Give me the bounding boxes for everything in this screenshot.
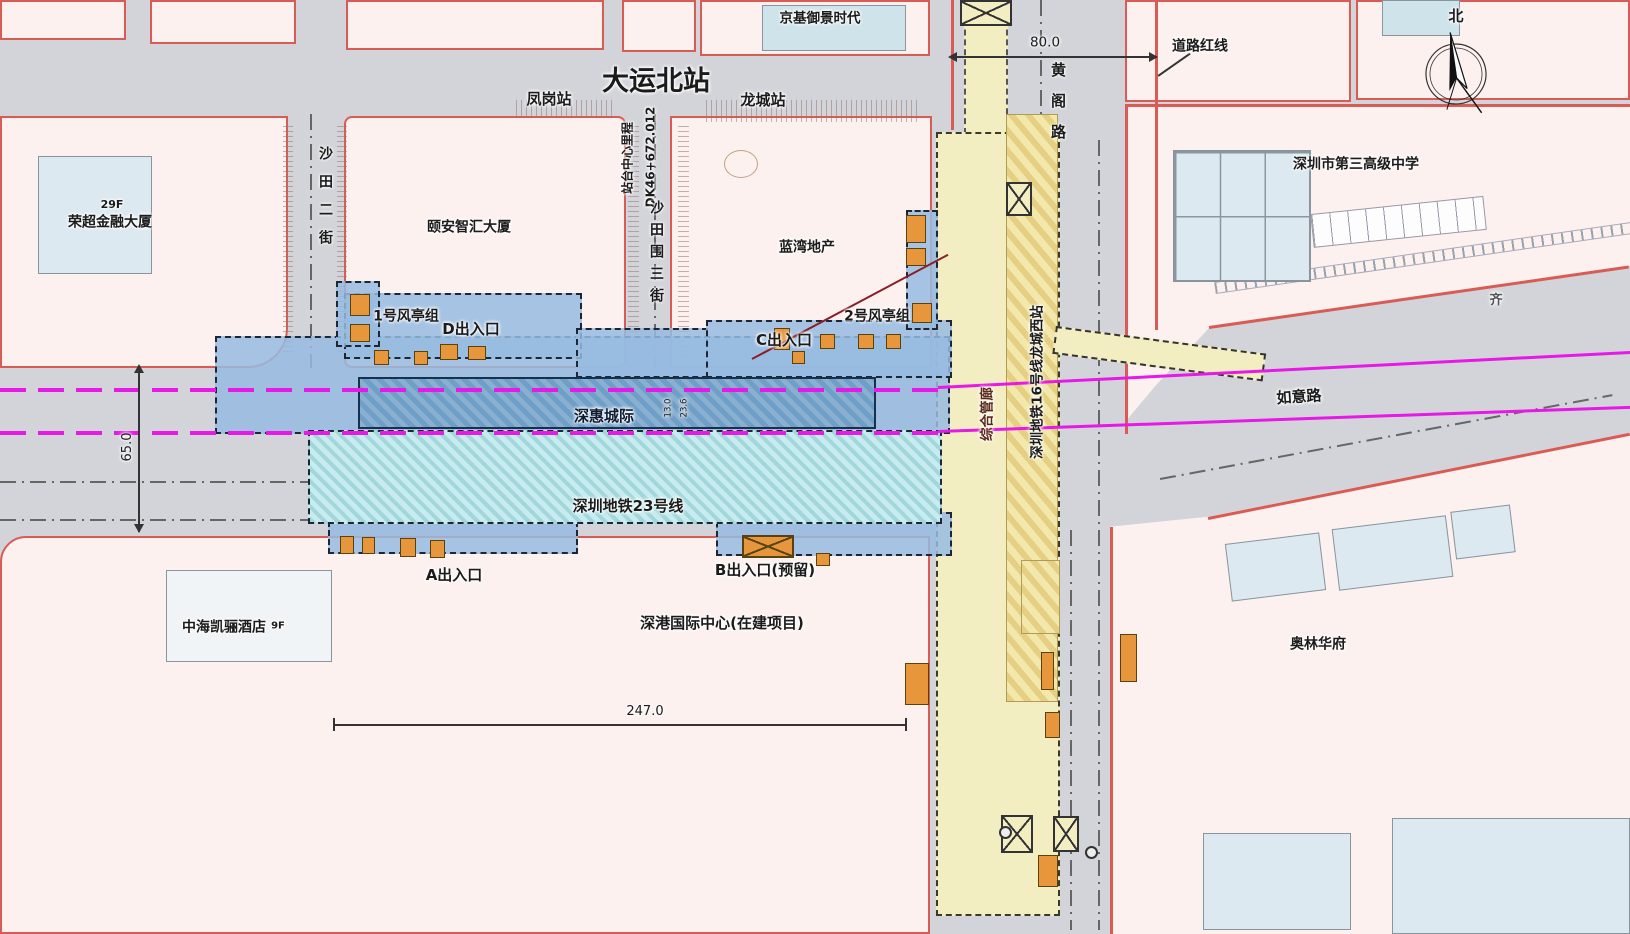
compass-north-label: 北 bbox=[1448, 8, 1463, 25]
label-exit-c: C出入口 bbox=[756, 332, 812, 349]
vent-box bbox=[362, 537, 375, 554]
vent-box bbox=[1041, 652, 1054, 690]
road-red-line bbox=[1110, 527, 1113, 934]
label-intercity: 深惠城际 bbox=[574, 408, 634, 425]
label-line23: 深圳地铁23号线 bbox=[573, 498, 684, 515]
lane-line bbox=[310, 114, 312, 368]
building-school bbox=[1173, 150, 1311, 282]
label-hotel: 中海凯骊酒店 bbox=[182, 620, 266, 635]
alignment-line-dashed bbox=[0, 431, 942, 435]
dimension-line-65 bbox=[138, 370, 140, 532]
vent-box bbox=[912, 303, 932, 323]
lane-line bbox=[0, 519, 334, 521]
vent-box bbox=[374, 350, 389, 365]
exit-b-structure bbox=[742, 535, 794, 558]
parcel bbox=[346, 0, 604, 50]
vent-box bbox=[820, 334, 835, 349]
vent-box bbox=[430, 540, 445, 558]
signal-icon bbox=[1085, 846, 1098, 859]
road-red-line bbox=[1125, 104, 1630, 107]
vent-box bbox=[468, 346, 486, 360]
label-fenggang-station: 凤岗站 bbox=[526, 91, 571, 108]
vent-box bbox=[792, 351, 805, 364]
building-aolin bbox=[1225, 532, 1326, 601]
structure-box bbox=[960, 0, 1012, 26]
dimension-arrow bbox=[134, 364, 144, 373]
vent-box bbox=[1045, 712, 1060, 738]
label-vent-group-2: 2号风亭组 bbox=[844, 309, 910, 324]
label-exit-d: D出入口 bbox=[442, 321, 499, 338]
label-qi: 齐 bbox=[1489, 294, 1502, 308]
vent-box bbox=[858, 334, 874, 349]
vent-box bbox=[1120, 634, 1137, 682]
terrain-contour bbox=[724, 150, 758, 178]
building bbox=[1392, 818, 1630, 934]
parcel bbox=[1125, 0, 1351, 102]
road-red-line bbox=[1155, 0, 1158, 330]
slope-hatch bbox=[283, 126, 293, 356]
label-aolin: 奥林华府 bbox=[1290, 637, 1346, 652]
vent-box bbox=[905, 663, 929, 705]
dimension-line-247 bbox=[333, 724, 905, 726]
building bbox=[1203, 833, 1351, 930]
dimension-13: 13.0 bbox=[664, 399, 673, 418]
alignment-line-dashed bbox=[0, 388, 942, 392]
compass-rose-icon bbox=[1418, 28, 1494, 120]
parcel bbox=[150, 0, 296, 44]
vent-box bbox=[340, 536, 354, 554]
label-shengang: 深港国际中心(在建项目) bbox=[640, 615, 804, 632]
label-mileage: 站台中心里程 bbox=[621, 122, 634, 194]
compass: 北 bbox=[1418, 2, 1494, 120]
label-lanwan: 蓝湾地产 bbox=[779, 240, 835, 255]
road-red-line bbox=[951, 0, 954, 130]
label-29f: 29F bbox=[101, 199, 124, 211]
site-plan-map: 北 大运北站 凤岗站 龙城站 京基御景时代 深圳市第三高级中学 蓝湾地产 颐安智… bbox=[0, 0, 1630, 934]
dimension-23: 23.6 bbox=[680, 399, 689, 418]
vent-box bbox=[906, 215, 926, 243]
dimension-arrow bbox=[1149, 52, 1158, 62]
dimension-65: 65.0 bbox=[121, 433, 135, 462]
label-utility-tunnel: 综合管廊 bbox=[981, 387, 996, 441]
dimension-tick bbox=[905, 718, 907, 731]
lane-line bbox=[1098, 140, 1100, 930]
signal-icon bbox=[999, 826, 1012, 839]
vent-box bbox=[440, 344, 458, 360]
dimension-line-80 bbox=[953, 56, 1157, 58]
label-line16-station: 深圳地铁16号线龙城西站 bbox=[1031, 305, 1046, 459]
vent-box bbox=[906, 248, 926, 266]
station-arm bbox=[576, 328, 708, 378]
dimension-arrow bbox=[134, 524, 144, 533]
parcel bbox=[0, 0, 126, 40]
lane-line bbox=[1070, 530, 1072, 930]
label-redline: 道路红线 bbox=[1172, 39, 1228, 54]
vent-box bbox=[886, 334, 901, 349]
label-huangge-road: 黄阁路 bbox=[1048, 62, 1069, 155]
label-longcheng-station: 龙城站 bbox=[740, 92, 785, 109]
label-mileage-value: DK46+672.012 bbox=[644, 107, 657, 208]
vent-box bbox=[816, 553, 830, 566]
label-9f: 9F bbox=[271, 621, 285, 632]
label-shatian2-street: 沙田二街 bbox=[315, 146, 335, 258]
dimension-arrow bbox=[948, 52, 957, 62]
vent-box bbox=[350, 324, 370, 342]
label-shatianwei3-street: 沙田围三街 bbox=[646, 200, 666, 310]
vent-box bbox=[400, 538, 416, 557]
label-ruyi-road: 如意路 bbox=[1276, 387, 1322, 407]
parcel-shengang bbox=[0, 536, 930, 934]
slope-hatch bbox=[678, 126, 689, 358]
parcel bbox=[622, 0, 696, 52]
structure-box bbox=[1006, 182, 1032, 216]
line16-station-hatch bbox=[1021, 560, 1060, 634]
label-exit-b: B出入口(预留) bbox=[715, 562, 815, 579]
lane-line bbox=[0, 481, 334, 483]
label-exit-a: A出入口 bbox=[426, 567, 483, 584]
road-red-line bbox=[1125, 104, 1128, 434]
vent-box bbox=[1038, 855, 1058, 887]
dimension-247: 247.0 bbox=[626, 705, 663, 719]
building-hotel bbox=[166, 570, 332, 662]
label-school: 深圳市第三高级中学 bbox=[1293, 157, 1419, 172]
dimension-80: 80.0 bbox=[1030, 36, 1060, 51]
structure-box bbox=[1053, 816, 1079, 852]
building-aolin bbox=[1450, 505, 1515, 560]
label-rongchao: 荣超金融大厦 bbox=[68, 215, 152, 230]
vent-box bbox=[350, 294, 370, 316]
label-vent-group-1: 1号风亭组 bbox=[373, 309, 439, 324]
lane-line bbox=[1040, 0, 1042, 132]
dimension-tick bbox=[333, 718, 335, 731]
page-title: 大运北站 bbox=[602, 67, 710, 97]
label-kingkey: 京基御景时代 bbox=[780, 12, 861, 27]
vent-box bbox=[414, 351, 428, 365]
slope-hatch bbox=[706, 100, 921, 122]
label-yian: 颐安智汇大厦 bbox=[427, 220, 511, 235]
